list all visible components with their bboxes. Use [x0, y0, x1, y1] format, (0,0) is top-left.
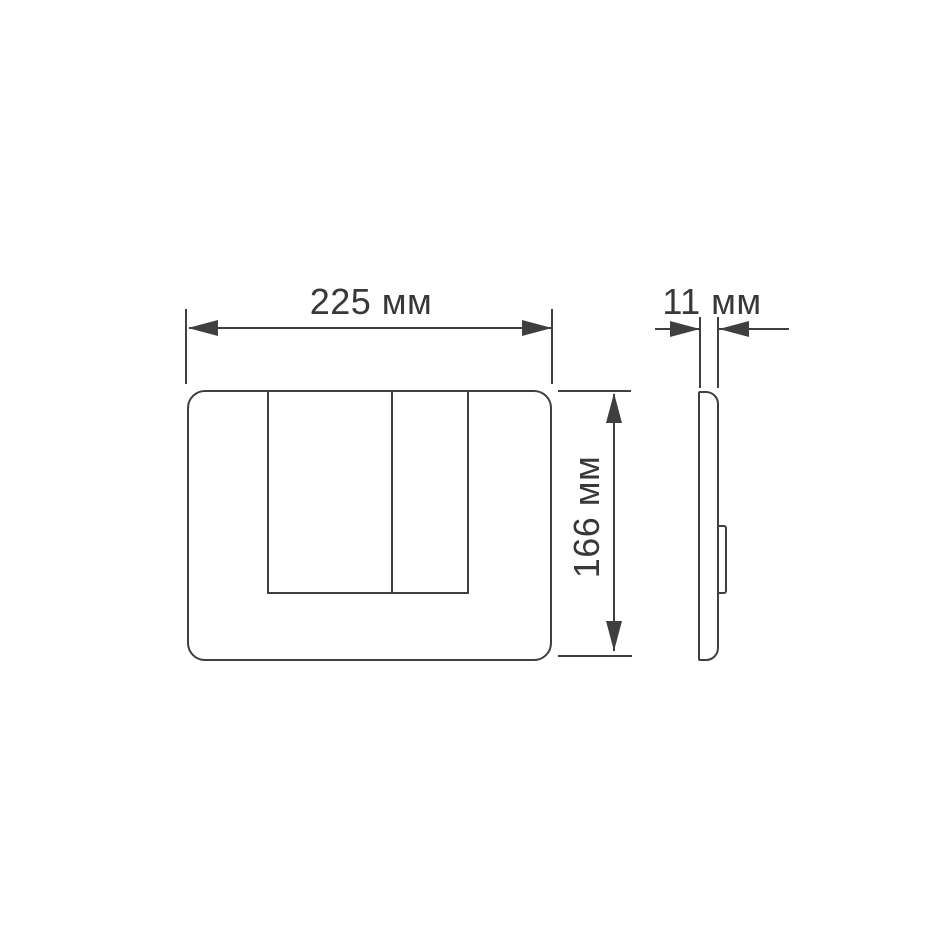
height-dimension-label: 166 мм	[569, 456, 605, 579]
thickness-dimension-label: 11 мм	[662, 284, 761, 320]
width-arrowhead-right-icon	[522, 320, 552, 336]
button-divider-line	[391, 392, 393, 592]
height-dimension-line	[613, 394, 615, 651]
width-dimension-line	[189, 327, 551, 329]
width-extension-line-left	[185, 309, 187, 384]
dimension-drawing-canvas: 225 мм 11 мм 166 мм	[0, 0, 950, 950]
height-arrowhead-bottom-icon	[606, 621, 622, 651]
thickness-arrowhead-right-icon	[719, 321, 749, 337]
flush-buttons-block	[267, 390, 469, 594]
width-dimension-label: 225 мм	[310, 284, 433, 320]
height-arrowhead-top-icon	[606, 393, 622, 423]
side-view-plate-profile	[698, 391, 719, 661]
height-extension-line-top	[558, 390, 631, 392]
side-view-mounting-clip	[717, 525, 727, 594]
thickness-arrowhead-left-icon	[670, 321, 700, 337]
width-arrowhead-left-icon	[188, 320, 218, 336]
height-extension-line-bottom	[558, 655, 632, 657]
